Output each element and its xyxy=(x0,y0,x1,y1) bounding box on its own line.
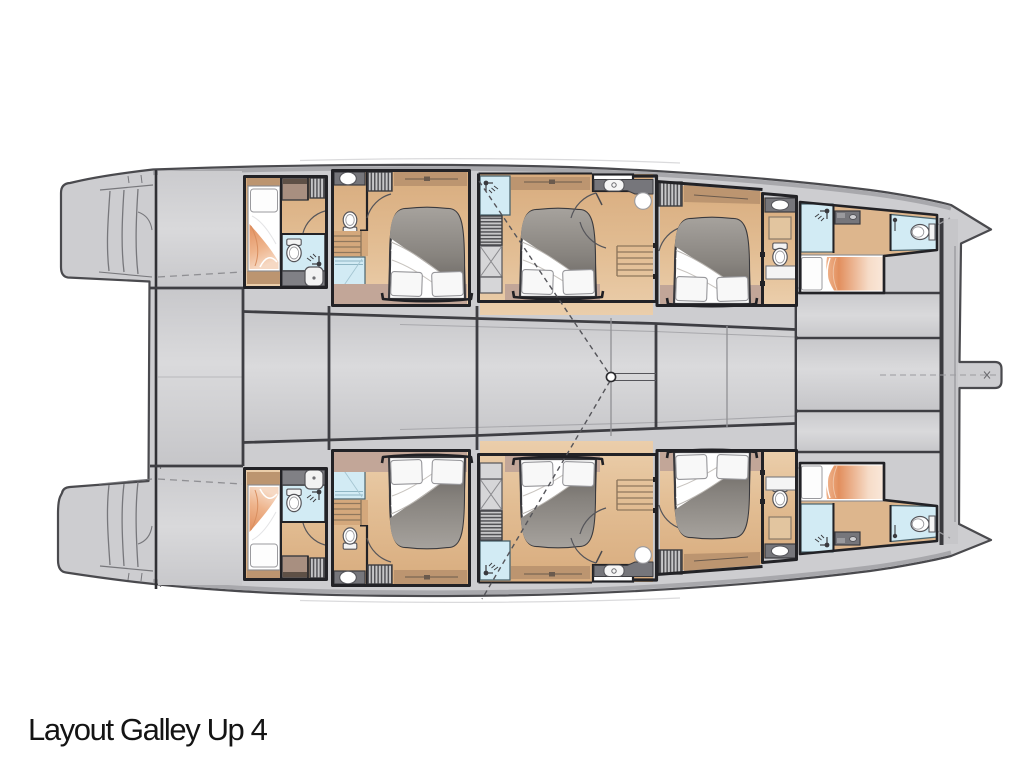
svg-text:Layout Galley Up 4: Layout Galley Up 4 xyxy=(28,712,268,747)
